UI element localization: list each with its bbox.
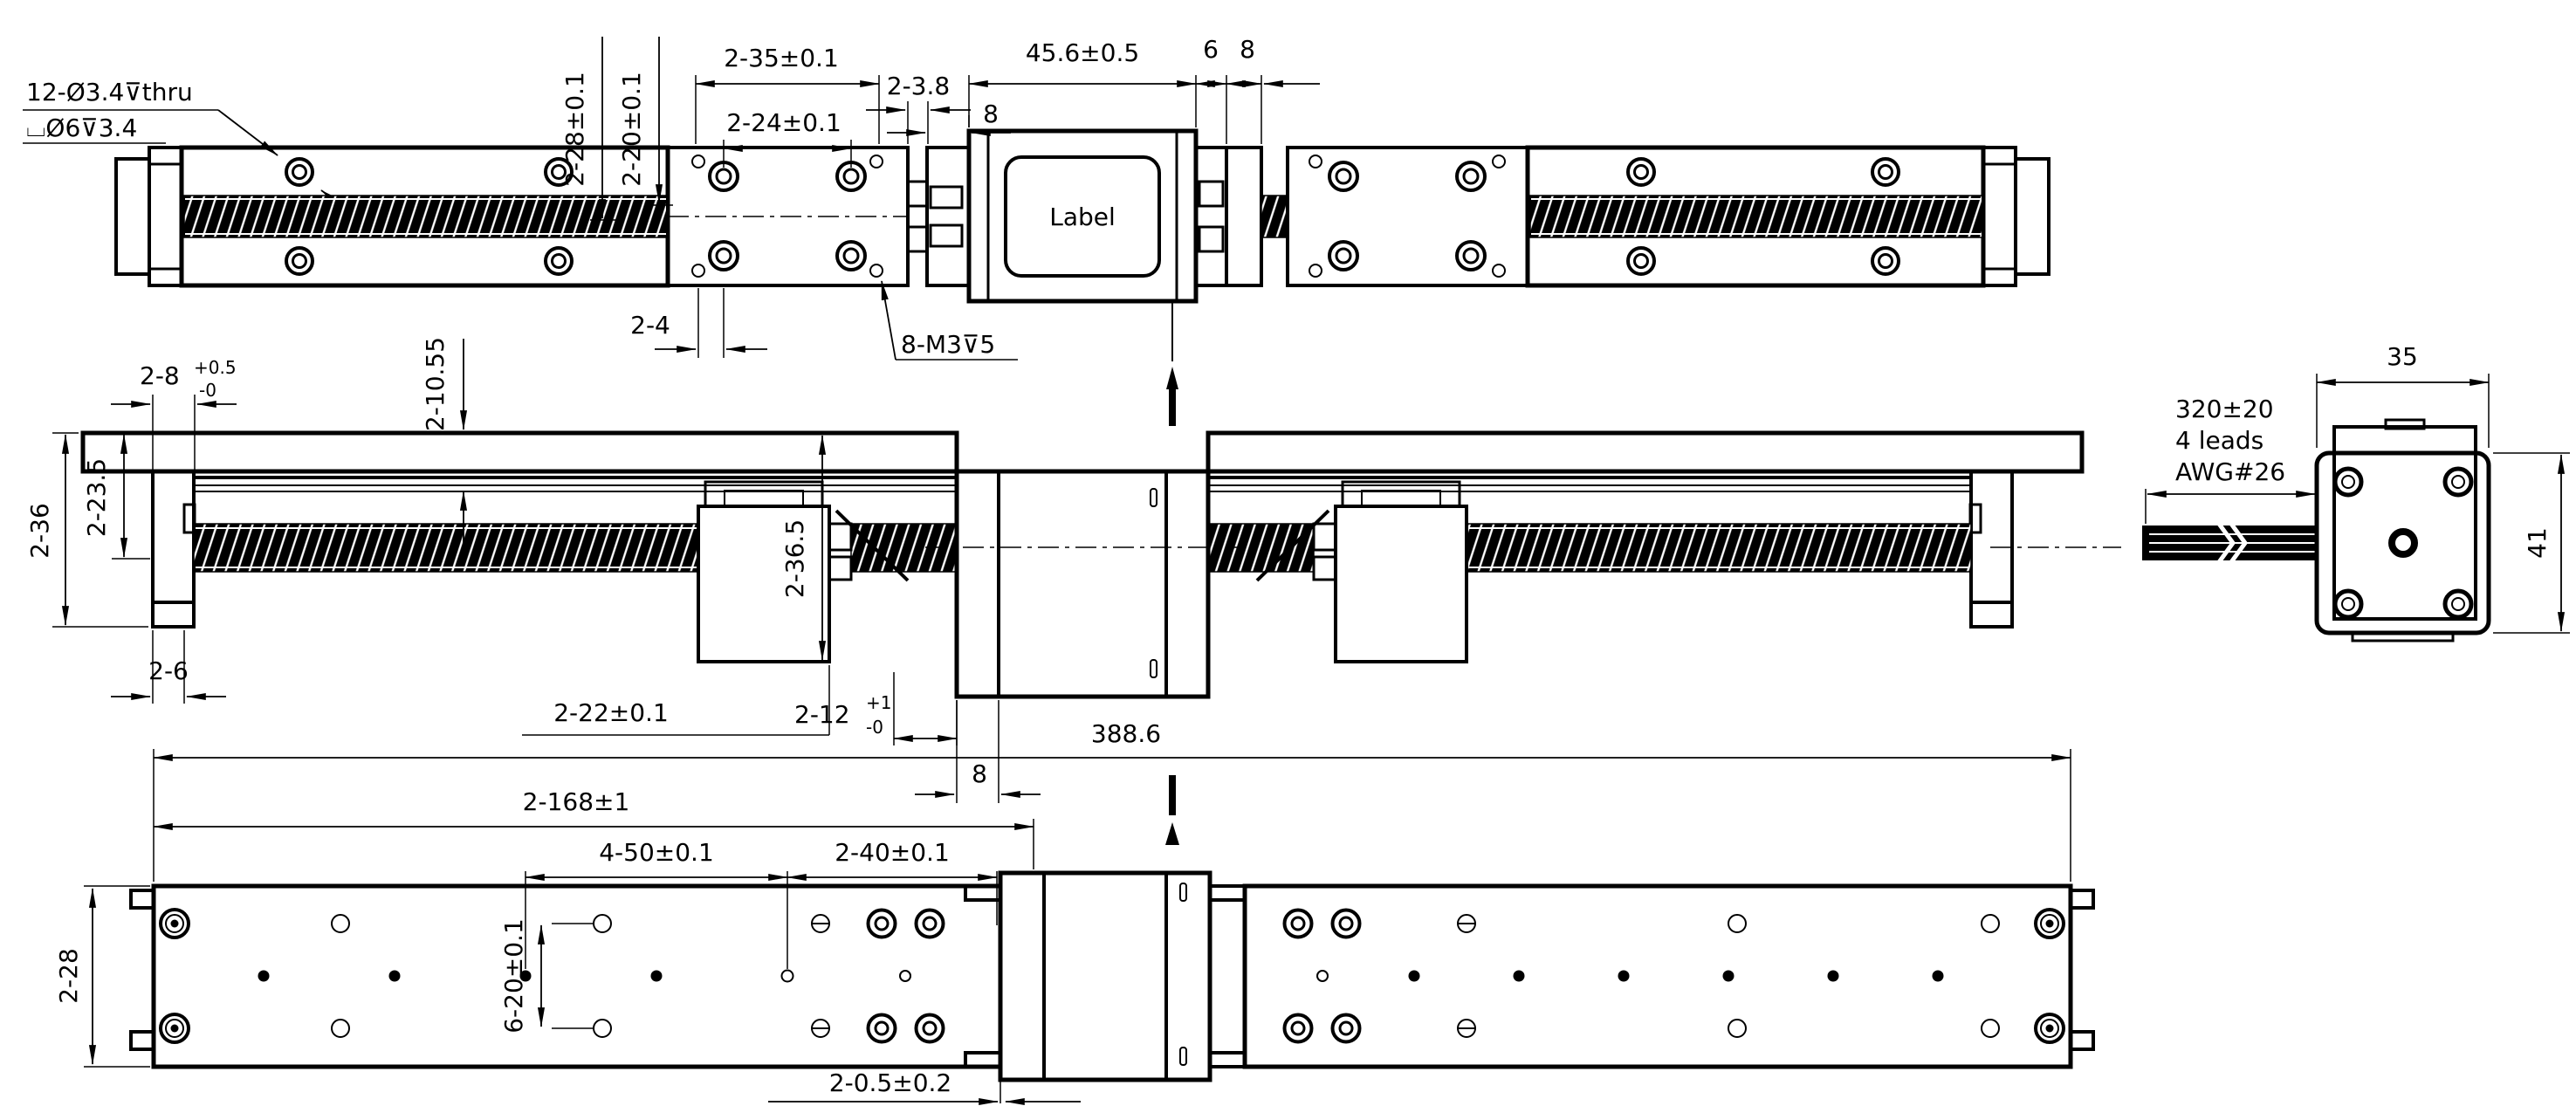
- top-dim-24: 2-24±0.1: [724, 108, 851, 168]
- front-dim-10-55: 2-10.55: [421, 337, 464, 546]
- svg-text:2-10.55: 2-10.55: [421, 337, 450, 431]
- top-dim-20: 2-20±0.1: [617, 37, 673, 205]
- svg-text:-0: -0: [866, 717, 883, 738]
- svg-text:6-20±0.1: 6-20±0.1: [499, 918, 528, 1034]
- left-coupling-housing: [927, 148, 969, 285]
- lead-screw-right: [1530, 196, 1983, 237]
- motor-corner-screws: [2335, 469, 2471, 617]
- front-motor-block: [925, 471, 1240, 697]
- svg-text:35: 35: [2387, 342, 2418, 371]
- motor-end-view: 35 41 320±20 4 leads AWG#26: [2142, 342, 2570, 641]
- top-callout-tapped: 8-M3⊽5: [882, 281, 1018, 360]
- bottom-dim-0-5: 2-0.5±0.2: [768, 1068, 1081, 1103]
- svg-text:2-6: 2-6: [148, 656, 189, 685]
- svg-text:6: 6: [1203, 35, 1219, 64]
- motor-bottom-tab: [2353, 633, 2453, 641]
- callout-counterbore-line1: 12-Ø3.4⊽thru: [26, 78, 193, 106]
- svg-text:8-M3⊽5: 8-M3⊽5: [901, 330, 995, 359]
- bottom-motor-block: [965, 873, 1245, 1080]
- motor-label-text: Label: [1049, 203, 1116, 231]
- svg-text:2-28±0.1: 2-28±0.1: [560, 72, 589, 187]
- front-screw-right-outer: [1467, 524, 1971, 572]
- motor-top-notch: [2386, 420, 2424, 429]
- motor-cable-note: 320±20 4 leads AWG#26: [2146, 395, 2315, 524]
- callout-counterbore-line2: ⌴Ø6⊽3.4: [26, 113, 137, 142]
- svg-text:4-50±0.1: 4-50±0.1: [599, 838, 714, 867]
- svg-text:8: 8: [983, 100, 999, 128]
- svg-text:2-36: 2-36: [25, 503, 54, 559]
- bottom-dim-28: 2-28: [54, 886, 150, 1067]
- bottom-left-holes: [161, 910, 944, 1042]
- front-dim-8-center: 8: [915, 700, 1041, 803]
- bottom-view: 388.6 2-168±1 4-50±0.1 2-40±0.1: [54, 719, 2093, 1103]
- svg-text:2-40±0.1: 2-40±0.1: [835, 838, 950, 867]
- svg-text:2-35±0.1: 2-35±0.1: [724, 44, 839, 72]
- svg-text:41: 41: [2523, 527, 2552, 559]
- svg-text:2-4: 2-4: [630, 311, 670, 340]
- top-dim-45-6: 45.6±0.5: [969, 38, 1196, 127]
- left-endcap-inner: [149, 148, 182, 285]
- svg-text:2-0.5±0.2: 2-0.5±0.2: [829, 1068, 951, 1097]
- drawing-canvas: 12-Ø3.4⊽thru ⌴Ø6⊽3.4 Label: [0, 0, 2576, 1106]
- right-table-plate: [1208, 433, 2082, 471]
- svg-text:388.6: 388.6: [1091, 719, 1161, 748]
- bottom-dim-20: 6-20±0.1: [499, 918, 594, 1034]
- motor-center-hole: [2392, 532, 2415, 554]
- svg-text:2-12: 2-12: [794, 700, 850, 729]
- top-dim-8-left: 8: [887, 100, 1011, 133]
- front-dim-23-5: 2-23.5: [82, 435, 150, 559]
- svg-text:2-8: 2-8: [140, 361, 180, 390]
- svg-text:AWG#26: AWG#26: [2175, 457, 2285, 486]
- svg-text:2-23.5: 2-23.5: [82, 458, 111, 537]
- top-dim-4: 2-4: [630, 288, 767, 358]
- motor-cable: [2142, 524, 2317, 562]
- svg-text:8: 8: [1240, 35, 1255, 64]
- svg-text:320±20: 320±20: [2175, 395, 2274, 423]
- right-endcap-inner: [1983, 148, 2016, 285]
- right-coupling-b: [1226, 148, 1261, 285]
- front-dim-8: 2-8 +0.5 -0: [111, 357, 237, 470]
- front-view: 2-8 +0.5 -0 2-10.55 2-36 2-23.5 2-6 2-22…: [25, 303, 2121, 803]
- svg-text:2-3.8: 2-3.8: [887, 72, 950, 100]
- bottom-right-holes: [1285, 910, 2064, 1042]
- svg-text:+0.5: +0.5: [194, 357, 237, 378]
- cable-direction-arrow-lower: [1165, 775, 1179, 845]
- top-dim-28: 2-28±0.1: [560, 37, 616, 220]
- right-end-support: [1970, 471, 2012, 627]
- front-dim-6: 2-6: [111, 630, 226, 704]
- motor-dim-height: 41: [2493, 453, 2570, 633]
- front-screw-left-outer: [194, 524, 698, 572]
- svg-text:+1: +1: [866, 692, 891, 713]
- technical-drawing-page: 12-Ø3.4⊽thru ⌴Ø6⊽3.4 Label: [0, 0, 2576, 1106]
- svg-text:2-22±0.1: 2-22±0.1: [553, 698, 669, 727]
- front-dim-22: 2-22±0.1: [522, 665, 829, 735]
- front-screw-right-inner: [1208, 524, 1314, 572]
- top-dim-8-right: 8: [1226, 35, 1320, 144]
- right-endcap-outer: [2016, 159, 2049, 274]
- left-table-plate: [83, 433, 957, 471]
- right-carriage-holes: [1309, 155, 1505, 277]
- svg-text:45.6±0.5: 45.6±0.5: [1026, 38, 1139, 67]
- motor-dim-width: 35: [2317, 342, 2489, 448]
- svg-text:2-28: 2-28: [54, 948, 83, 1004]
- svg-text:2-168±1: 2-168±1: [523, 787, 630, 816]
- svg-text:2-24±0.1: 2-24±0.1: [726, 108, 841, 137]
- svg-text:2-20±0.1: 2-20±0.1: [617, 72, 646, 187]
- guide-rails: [194, 477, 1971, 491]
- bottom-dim-50: 4-50±0.1: [526, 838, 787, 969]
- cable-direction-arrow-upper: [1166, 303, 1178, 426]
- top-dim-6: 6: [1196, 35, 1226, 144]
- right-carriage-plate: [1288, 148, 1528, 285]
- svg-text:2-36.5: 2-36.5: [780, 519, 809, 598]
- right-coupling-a: [1196, 148, 1226, 285]
- lead-screw-left: [184, 196, 668, 237]
- top-view: 12-Ø3.4⊽thru ⌴Ø6⊽3.4 Label: [23, 35, 2049, 360]
- bottom-dim-40: 2-40±0.1: [787, 838, 997, 925]
- left-end-support: [153, 471, 195, 627]
- bottom-right-plate: [1245, 886, 2071, 1067]
- lead-screw-stub-right: [1261, 196, 1288, 237]
- bottom-dim-total: 388.6: [154, 719, 2071, 882]
- svg-text:4 leads: 4 leads: [2175, 426, 2263, 455]
- svg-text:-0: -0: [199, 380, 216, 401]
- svg-text:8: 8: [972, 759, 987, 788]
- left-endcap-outer: [116, 159, 149, 274]
